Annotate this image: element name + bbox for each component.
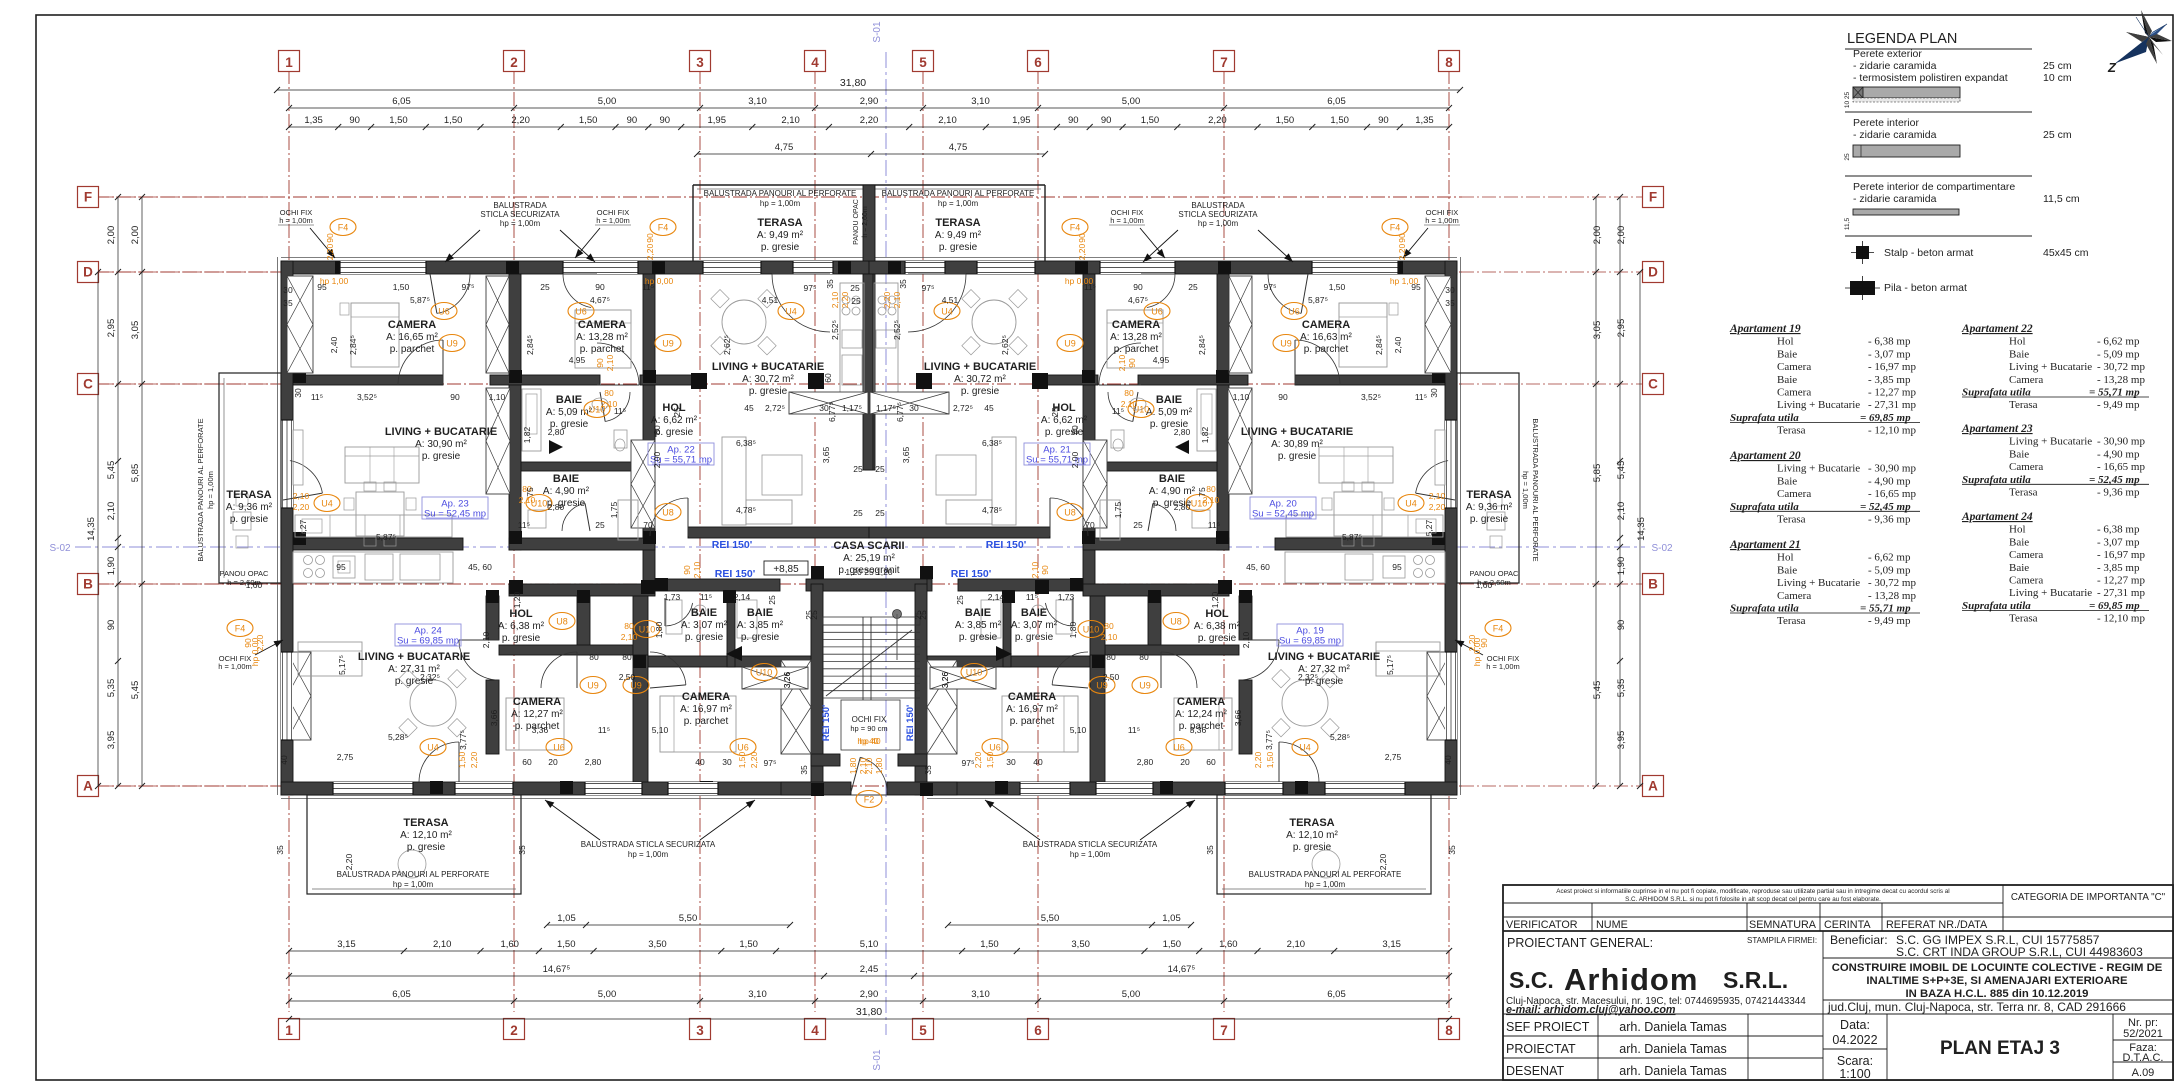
svg-text:- 4,90 mp: - 4,90 mp [2097, 448, 2140, 460]
svg-text:90: 90 [1127, 358, 1137, 368]
svg-text:2,32⁵: 2,32⁵ [1298, 672, 1318, 682]
svg-text:2,80: 2,80 [1174, 427, 1191, 437]
svg-text:p. gresie: p. gresie [749, 386, 788, 397]
svg-text:BALUSTRADA: BALUSTRADA [1191, 201, 1245, 210]
svg-text:CAMERA: CAMERA [682, 691, 730, 703]
svg-text:A: 30,90 m²: A: 30,90 m² [415, 439, 467, 450]
svg-text:- 5,09 mp: - 5,09 mp [1868, 564, 1911, 576]
svg-text:A: A [1648, 779, 1658, 794]
svg-text:CAMERA: CAMERA [1112, 319, 1160, 331]
svg-text:3,05: 3,05 [130, 321, 141, 340]
svg-text:11⁵: 11⁵ [1112, 406, 1124, 416]
svg-text:2,52⁵: 2,52⁵ [892, 320, 902, 340]
svg-text:5,85: 5,85 [130, 464, 141, 483]
svg-text:4,75: 4,75 [775, 142, 794, 153]
svg-text:90: 90 [627, 115, 638, 126]
svg-text:90: 90 [450, 392, 460, 402]
svg-text:- 30,72 mp: - 30,72 mp [1868, 577, 1916, 589]
svg-text:U10: U10 [966, 668, 983, 678]
svg-text:90: 90 [682, 565, 692, 575]
svg-text:1,17⁵: 1,17⁵ [876, 403, 896, 413]
svg-text:4: 4 [811, 55, 819, 70]
svg-text:2,80: 2,80 [1174, 502, 1191, 512]
svg-text:p. gresie: p. gresie [761, 242, 800, 253]
svg-text:- 9,49 mp: - 9,49 mp [2097, 399, 2140, 411]
svg-text:Stalp - beton armat: Stalp - beton armat [1884, 247, 1973, 259]
svg-text:HOL: HOL [509, 608, 533, 620]
svg-text:BALUSTRADA: BALUSTRADA [493, 201, 547, 210]
svg-text:U8: U8 [1064, 508, 1076, 518]
svg-text:TERASA: TERASA [935, 217, 980, 229]
svg-text:2,20: 2,20 [1397, 243, 1407, 260]
svg-text:25: 25 [850, 283, 860, 293]
svg-text:6,05: 6,05 [392, 989, 411, 1000]
svg-text:14,35: 14,35 [86, 517, 97, 541]
svg-text:Camera: Camera [2009, 374, 2043, 386]
svg-text:S.C. CRT INDA GROUP S.R.L, CUI: S.C. CRT INDA GROUP S.R.L, CUI 44983603 [1896, 945, 2143, 959]
svg-text:2,00: 2,00 [1592, 226, 1603, 245]
svg-text:STICLA SECURIZATA: STICLA SECURIZATA [1178, 210, 1258, 219]
svg-text:31,80: 31,80 [856, 1006, 882, 1018]
svg-text:REI 150': REI 150' [715, 568, 755, 580]
svg-text:h = 2,60m: h = 2,60m [862, 206, 869, 237]
svg-text:CAMERA: CAMERA [578, 319, 626, 331]
svg-text:4,51: 4,51 [942, 295, 959, 305]
svg-text:F4: F4 [338, 223, 349, 233]
svg-text:30: 30 [1429, 388, 1439, 398]
svg-text:90: 90 [659, 115, 670, 126]
svg-text:11⁵: 11⁵ [1026, 592, 1038, 602]
svg-text:- 16,97 mp: - 16,97 mp [2097, 549, 2145, 561]
svg-text:- 30,72 mp: - 30,72 mp [2097, 361, 2145, 373]
svg-text:2,84⁵: 2,84⁵ [1374, 335, 1384, 355]
svg-text:REI 150': REI 150' [821, 705, 832, 742]
svg-text:2,20: 2,20 [1378, 853, 1388, 870]
svg-text:hp = 1,00m: hp = 1,00m [1521, 471, 1530, 509]
svg-text:3,50: 3,50 [1071, 939, 1090, 950]
svg-text:A: 3,85 m²: A: 3,85 m² [737, 620, 784, 631]
svg-text:75: 75 [525, 487, 535, 497]
svg-text:D: D [1648, 265, 1658, 280]
svg-text:3,26: 3,26 [940, 671, 950, 688]
svg-text:Terasa: Terasa [2009, 613, 2038, 625]
svg-text:25: 25 [540, 282, 550, 292]
svg-text:1,05: 1,05 [557, 913, 576, 924]
svg-text:80: 80 [652, 425, 662, 435]
svg-text:2,20: 2,20 [973, 751, 983, 768]
svg-text:REI 150': REI 150' [951, 568, 991, 580]
svg-text:1,50: 1,50 [1265, 751, 1275, 768]
svg-text:Perete interior: Perete interior [1853, 117, 1919, 129]
svg-text:- 4,90 mp: - 4,90 mp [1868, 475, 1911, 487]
svg-text:2,62⁵: 2,62⁵ [1000, 335, 1010, 355]
svg-text:1,73: 1,73 [664, 592, 681, 602]
svg-text:6,05: 6,05 [392, 96, 411, 107]
svg-text:BAIE: BAIE [1156, 394, 1182, 406]
svg-text:90: 90 [595, 282, 605, 292]
svg-text:40: 40 [695, 757, 705, 767]
svg-text:2,20: 2,20 [840, 291, 850, 308]
svg-text:11⁵: 11⁵ [642, 282, 654, 292]
svg-text:4,51: 4,51 [762, 295, 779, 305]
svg-text:2,10: 2,10 [1241, 631, 1251, 648]
svg-text:2,20: 2,20 [645, 243, 655, 260]
svg-text:hp = 1,00m: hp = 1,00m [1070, 850, 1111, 859]
svg-text:p. gresie: p. gresie [961, 386, 1000, 397]
svg-text:p. parchet: p. parchet [390, 344, 435, 355]
svg-text:3,36: 3,36 [532, 725, 549, 735]
svg-text:A: 9,49 m²: A: 9,49 m² [935, 230, 982, 241]
svg-text:BAIE: BAIE [1021, 607, 1047, 619]
svg-text:Living + Bucatarie: Living + Bucatarie [2009, 361, 2092, 373]
svg-text:CONSTRUIRE IMOBIL DE LOCUINTE: CONSTRUIRE IMOBIL DE LOCUINTE COLECTIVE … [1832, 962, 2163, 974]
svg-text:p. parchet: p. parchet [580, 344, 625, 355]
svg-text:p. parchet: p. parchet [1114, 344, 1159, 355]
svg-text:LIVING + BUCATARIE: LIVING + BUCATARIE [1268, 651, 1380, 663]
svg-text:BAIE: BAIE [691, 607, 717, 619]
svg-text:U4: U4 [1405, 499, 1417, 509]
svg-text:5,00: 5,00 [598, 989, 617, 1000]
svg-text:97⁵: 97⁵ [764, 758, 777, 768]
svg-text:Apartament 22: Apartament 22 [1961, 323, 2033, 335]
svg-text:U4: U4 [785, 307, 797, 317]
svg-text:10 cm: 10 cm [2043, 72, 2072, 84]
svg-text:1,80: 1,80 [848, 757, 858, 774]
svg-text:S-02: S-02 [49, 543, 71, 554]
svg-text:25 cm: 25 cm [2043, 60, 2072, 72]
svg-text:20: 20 [1180, 757, 1190, 767]
svg-text:11⁵: 11⁵ [1128, 725, 1140, 735]
svg-text:U6: U6 [553, 743, 565, 753]
svg-text:90: 90 [595, 358, 605, 368]
svg-text:p. parchet: p. parchet [1010, 716, 1055, 727]
svg-text:25: 25 [672, 407, 682, 417]
svg-text:- 3,07 mp: - 3,07 mp [2097, 536, 2140, 548]
svg-text:A: 4,90 m²: A: 4,90 m² [1149, 486, 1196, 497]
svg-text:3,66: 3,66 [489, 709, 499, 726]
svg-text:45: 45 [744, 403, 754, 413]
svg-text:NUME: NUME [1596, 919, 1628, 931]
svg-text:2,10: 2,10 [605, 354, 615, 371]
svg-text:3,65: 3,65 [901, 446, 911, 463]
svg-text:Terasa: Terasa [2009, 487, 2038, 499]
svg-text:- 6,38 mp: - 6,38 mp [1868, 336, 1911, 348]
svg-text:S-01: S-01 [872, 21, 883, 43]
svg-text:90: 90 [349, 115, 360, 126]
svg-text:LIVING + BUCATARIE: LIVING + BUCATARIE [1241, 426, 1353, 438]
svg-text:2,10: 2,10 [830, 291, 840, 308]
svg-text:A: 12,10 m²: A: 12,10 m² [1286, 830, 1338, 841]
svg-text:Perete exterior: Perete exterior [1853, 48, 1922, 60]
svg-text:HOL: HOL [1205, 608, 1229, 620]
svg-text:1:100: 1:100 [1839, 1067, 1870, 1081]
svg-text:- 3,07 mp: - 3,07 mp [1868, 348, 1911, 360]
svg-text:2,14: 2,14 [734, 592, 751, 602]
svg-text:2,84⁵: 2,84⁵ [348, 335, 358, 355]
svg-text:30: 30 [293, 388, 303, 398]
svg-text:2,20: 2,20 [344, 853, 354, 870]
svg-text:5,00: 5,00 [598, 96, 617, 107]
svg-text:3,95: 3,95 [1616, 731, 1627, 750]
svg-text:BALUSTRADA PANOURI AL PERFORAT: BALUSTRADA PANOURI AL PERFORATE [196, 418, 205, 561]
svg-text:- 6,62 mp: - 6,62 mp [1868, 552, 1911, 564]
svg-text:25: 25 [913, 610, 923, 620]
svg-text:CAMERA: CAMERA [513, 696, 561, 708]
svg-text:A: 4,90 m²: A: 4,90 m² [543, 486, 590, 497]
svg-text:40: 40 [1443, 755, 1453, 765]
svg-text:2,10: 2,10 [892, 291, 902, 308]
svg-text:2,10: 2,10 [1287, 939, 1306, 950]
svg-text:A: 16,63 m²: A: 16,63 m² [1300, 332, 1352, 343]
svg-text:30: 30 [1006, 757, 1016, 767]
svg-text:2,10: 2,10 [781, 115, 800, 126]
svg-text:hp 40: hp 40 [857, 736, 879, 746]
svg-text:+8,85: +8,85 [773, 564, 799, 575]
svg-text:3,95: 3,95 [106, 731, 117, 750]
svg-text:A: 9,36 m²: A: 9,36 m² [226, 502, 273, 513]
svg-text:90: 90 [325, 233, 335, 243]
svg-text:3: 3 [696, 55, 704, 70]
svg-text:BAIE: BAIE [553, 473, 579, 485]
svg-text:Apartament 19: Apartament 19 [1729, 323, 1801, 335]
svg-text:Camera: Camera [1777, 488, 1811, 500]
svg-text:4,95: 4,95 [1153, 355, 1170, 365]
svg-text:A: 30,72 m²: A: 30,72 m² [954, 374, 1006, 385]
svg-text:- 9,36 mp: - 9,36 mp [2097, 487, 2140, 499]
svg-text:A: 9,36 m²: A: 9,36 m² [1466, 502, 1513, 513]
svg-text:PANOU OPAC: PANOU OPAC [1470, 569, 1519, 578]
svg-text:3,26: 3,26 [782, 671, 792, 688]
svg-text:3,10: 3,10 [971, 989, 990, 1000]
svg-text:1,50: 1,50 [457, 751, 467, 768]
svg-text:52/2021: 52/2021 [2123, 1028, 2163, 1040]
svg-text:35: 35 [825, 279, 835, 289]
svg-text:1,60: 1,60 [1476, 580, 1493, 590]
svg-text:30: 30 [283, 285, 293, 295]
svg-text:BALUSTRADA STICLA SECURIZATA: BALUSTRADA STICLA SECURIZATA [581, 840, 716, 849]
svg-text:PANOU OPAC: PANOU OPAC [220, 569, 269, 578]
svg-text:Living + Bucatarie: Living + Bucatarie [1777, 463, 1860, 475]
svg-text:INALTIME S+P+3E, SI AMENAJARI: INALTIME S+P+3E, SI AMENAJARI EXTERIOARE [1866, 975, 2128, 987]
svg-text:5,45: 5,45 [1592, 681, 1603, 700]
svg-text:STICLA SECURIZATA: STICLA SECURIZATA [480, 210, 560, 219]
svg-text:6,77⁵: 6,77⁵ [895, 402, 905, 422]
svg-text:25: 25 [1050, 407, 1060, 417]
svg-text:90: 90 [1101, 115, 1112, 126]
svg-text:80: 80 [624, 621, 634, 631]
svg-text:97⁵: 97⁵ [1264, 282, 1277, 292]
svg-text:90: 90 [1068, 115, 1079, 126]
svg-text:jud.Cluj, mun. Cluj-Napoca, st: jud.Cluj, mun. Cluj-Napoca, str. Terra n… [1827, 1000, 2126, 1014]
svg-text:1: 1 [285, 1023, 293, 1038]
svg-text:45, 60: 45, 60 [468, 562, 492, 572]
svg-text:95: 95 [1392, 562, 1402, 572]
svg-text:2,95: 2,95 [1616, 319, 1627, 338]
svg-text:5,87⁵: 5,87⁵ [1308, 295, 1328, 305]
svg-text:Perete interior de compartimen: Perete interior de compartimentare [1853, 181, 2015, 193]
svg-text:5: 5 [919, 55, 927, 70]
svg-text:p. gresie: p. gresie [407, 842, 446, 853]
svg-text:S.C.: S.C. [1509, 967, 1554, 993]
svg-text:40: 40 [1033, 757, 1043, 767]
svg-text:1,80: 1,80 [1068, 621, 1078, 638]
svg-text:8: 8 [1445, 55, 1453, 70]
svg-text:14,35: 14,35 [1636, 517, 1647, 541]
svg-text:60: 60 [823, 373, 833, 383]
svg-text:TERASA: TERASA [757, 217, 802, 229]
svg-text:p. gresie: p. gresie [939, 242, 978, 253]
svg-text:- 13,28 mp: - 13,28 mp [1868, 590, 1916, 602]
svg-text:1,05: 1,05 [1162, 913, 1181, 924]
svg-text:- zidarie caramida: - zidarie caramida [1853, 193, 1937, 205]
svg-text:- 16,65 mp: - 16,65 mp [1868, 488, 1916, 500]
svg-text:5,10: 5,10 [652, 725, 669, 735]
svg-text:1,75: 1,75 [609, 501, 619, 518]
svg-text:LIVING + BUCATARIE: LIVING + BUCATARIE [924, 361, 1036, 373]
svg-text:CASA SCARII: CASA SCARII [833, 540, 904, 552]
svg-text:11⁵: 11⁵ [1415, 392, 1427, 402]
svg-text:U6: U6 [737, 743, 749, 753]
svg-text:U4: U4 [427, 743, 439, 753]
svg-text:h = 1,00m: h = 1,00m [1110, 216, 1144, 225]
svg-text:90: 90 [1077, 233, 1087, 243]
svg-text:A: 16,97 m²: A: 16,97 m² [1006, 704, 1058, 715]
svg-text:3,10: 3,10 [748, 96, 767, 107]
svg-text:1,50: 1,50 [579, 115, 598, 126]
svg-text:1,60: 1,60 [1219, 939, 1238, 950]
svg-text:3,10: 3,10 [748, 989, 767, 1000]
svg-text:60: 60 [1206, 757, 1216, 767]
svg-text:TERASA: TERASA [1289, 817, 1334, 829]
svg-text:80: 80 [1139, 652, 1149, 662]
svg-text:D: D [83, 265, 93, 280]
svg-text:2,10: 2,10 [692, 561, 702, 578]
svg-text:1,73: 1,73 [1058, 592, 1075, 602]
svg-text:hp = 1,00m: hp = 1,00m [393, 880, 434, 889]
svg-text:- 12,10 mp: - 12,10 mp [1868, 425, 1916, 437]
svg-text:2,62⁵: 2,62⁵ [722, 335, 732, 355]
svg-text:5,00: 5,00 [1122, 989, 1141, 1000]
svg-text:CAMERA: CAMERA [1302, 319, 1350, 331]
svg-text:2,40: 2,40 [329, 336, 339, 353]
svg-text:75: 75 [1197, 487, 1207, 497]
svg-text:- 12,27 mp: - 12,27 mp [1868, 387, 1916, 399]
svg-text:- zidarie caramida: - zidarie caramida [1853, 60, 1937, 72]
svg-text:5,87⁵: 5,87⁵ [410, 295, 430, 305]
svg-text:DESENAT: DESENAT [1506, 1064, 1564, 1078]
svg-text:hp = 1,00m: hp = 1,00m [938, 199, 979, 208]
svg-text:1,50: 1,50 [985, 751, 995, 768]
svg-text:6,05: 6,05 [1327, 989, 1346, 1000]
svg-text:A: 16,97 m²: A: 16,97 m² [680, 704, 732, 715]
svg-text:4,75: 4,75 [949, 142, 968, 153]
svg-text:30: 30 [1445, 285, 1455, 295]
svg-text:Beneficiar:: Beneficiar: [1830, 933, 1888, 947]
svg-text:U6: U6 [438, 307, 450, 317]
svg-text:2,20: 2,20 [1208, 115, 1227, 126]
svg-text:F4: F4 [1070, 223, 1081, 233]
svg-text:A: 30,72 m²: A: 30,72 m² [742, 374, 794, 385]
svg-text:35: 35 [1445, 298, 1455, 308]
svg-text:REI 150': REI 150' [986, 539, 1026, 551]
svg-text:Hol: Hol [1777, 336, 1794, 348]
svg-text:Living + Bucatarie: Living + Bucatarie [1777, 577, 1860, 589]
svg-text:25: 25 [595, 520, 605, 530]
svg-text:35: 35 [1205, 845, 1215, 855]
svg-text:2,20: 2,20 [1077, 243, 1087, 260]
svg-text:U9: U9 [662, 339, 674, 349]
svg-text:6: 6 [1034, 1023, 1042, 1038]
svg-text:- 13,28 mp: - 13,28 mp [2097, 374, 2145, 386]
svg-text:CAMERA: CAMERA [1008, 691, 1056, 703]
svg-text:1,35: 1,35 [1415, 115, 1434, 126]
svg-text:2,10: 2,10 [433, 939, 452, 950]
svg-text:p. gresie: p. gresie [1198, 633, 1237, 644]
svg-text:2,90: 2,90 [860, 989, 879, 1000]
svg-text:Apartament 20: Apartament 20 [1729, 450, 1801, 462]
svg-text:Living + Bucatarie: Living + Bucatarie [1777, 399, 1860, 411]
svg-text:2,10: 2,10 [1616, 502, 1627, 521]
svg-text:CAMERA: CAMERA [1177, 696, 1225, 708]
svg-text:3,77⁵: 3,77⁵ [1264, 730, 1274, 750]
svg-text:D.T.A.C.: D.T.A.C. [2123, 1052, 2164, 1064]
svg-text:A: 9,49 m²: A: 9,49 m² [757, 230, 804, 241]
svg-text:U9: U9 [1096, 681, 1108, 691]
svg-text:45, 60: 45, 60 [1246, 562, 1270, 572]
svg-text:95: 95 [336, 562, 346, 572]
svg-text:3,15: 3,15 [1382, 939, 1401, 950]
svg-text:U10: U10 [756, 668, 773, 678]
svg-text:hp = 1,00m: hp = 1,00m [206, 471, 215, 509]
svg-text:U9: U9 [587, 681, 599, 691]
svg-text:25: 25 [851, 296, 861, 306]
svg-text:LIVING + BUCATARIE: LIVING + BUCATARIE [712, 361, 824, 373]
svg-text:5,27: 5,27 [298, 519, 308, 536]
svg-text:35: 35 [923, 765, 933, 775]
svg-text:TERASA: TERASA [226, 489, 271, 501]
svg-text:80: 80 [604, 388, 614, 398]
svg-text:hp = 1,00m: hp = 1,00m [1305, 880, 1346, 889]
svg-text:11⁵: 11⁵ [1208, 520, 1220, 530]
svg-text:1,50: 1,50 [393, 282, 410, 292]
svg-text:2,10: 2,10 [1030, 561, 1040, 578]
svg-text:p. parchet: p. parchet [684, 716, 729, 727]
svg-text:- 5,09 mp: - 5,09 mp [2097, 348, 2140, 360]
svg-text:S-02: S-02 [1651, 543, 1673, 554]
svg-text:U4: U4 [1299, 743, 1311, 753]
svg-text:SEMNATURA: SEMNATURA [1749, 919, 1817, 931]
svg-text:VERIFICATOR: VERIFICATOR [1506, 919, 1578, 931]
svg-text:25: 25 [875, 464, 885, 474]
svg-text:5,10: 5,10 [860, 939, 879, 950]
svg-text:- 27,31 mp: - 27,31 mp [2097, 587, 2145, 599]
svg-text:3,36: 3,36 [1190, 725, 1207, 735]
svg-text:Camera: Camera [2009, 549, 2043, 561]
svg-text:- 6,62 mp: - 6,62 mp [2097, 336, 2140, 348]
svg-text:BAIE: BAIE [747, 607, 773, 619]
svg-text:Apartament 24: Apartament 24 [1961, 511, 2033, 523]
svg-text:arh. Daniela Tamas: arh. Daniela Tamas [1619, 1064, 1726, 1078]
svg-text:1,50: 1,50 [737, 751, 747, 768]
svg-text:B: B [1648, 577, 1658, 592]
svg-text:5,17⁵: 5,17⁵ [1385, 655, 1395, 675]
svg-text:U10: U10 [639, 625, 656, 635]
svg-text:Baie: Baie [1777, 374, 1797, 386]
svg-text:p. gresie: p. gresie [502, 633, 541, 644]
svg-text:Data:: Data: [1840, 1018, 1870, 1032]
svg-text:2,14: 2,14 [988, 592, 1005, 602]
svg-text:h = 1,00m: h = 1,00m [1486, 662, 1520, 671]
